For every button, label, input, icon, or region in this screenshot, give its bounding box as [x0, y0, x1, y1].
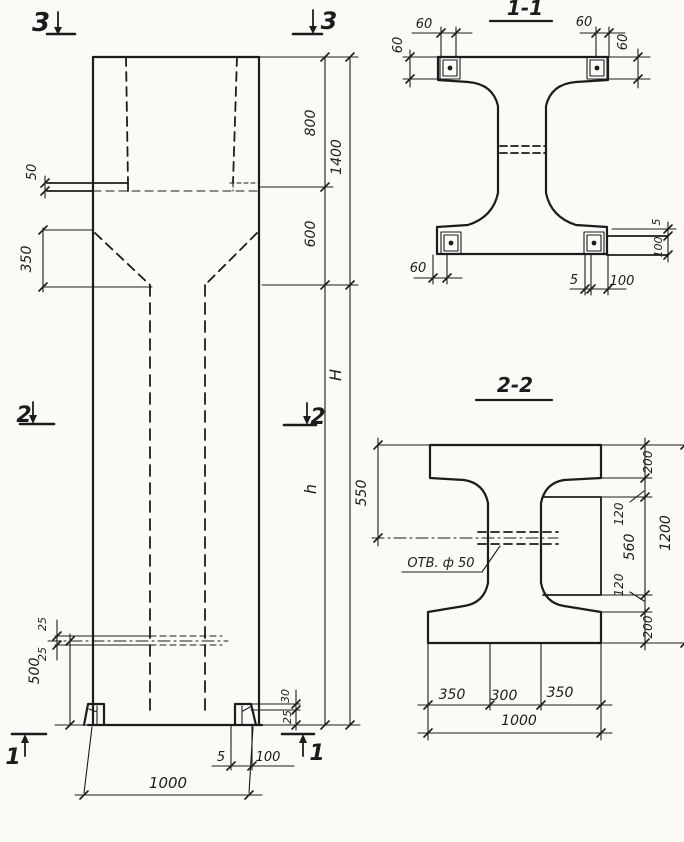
- s11-dim-100-bottom-right: 100: [610, 274, 635, 289]
- s22-dim-120-top: 120: [612, 502, 626, 525]
- dim-height-h: h: [301, 484, 320, 494]
- s22-dimension-ticks: [374, 441, 684, 737]
- section-mark-1-right: 1: [309, 741, 324, 766]
- section-mark-1-left: 1: [5, 745, 20, 770]
- dim-taper-350: 350: [19, 246, 35, 273]
- s22-dim-560: 560: [622, 534, 638, 561]
- s22-i-section-outline: [428, 445, 601, 643]
- s11-dim-5-right-strip: 5: [650, 219, 663, 226]
- dim-foot-30: 30: [279, 689, 292, 703]
- s22-dim-200-top: 200: [641, 450, 655, 473]
- hidden-web-lines: [150, 285, 205, 712]
- dim-base-100: 100: [256, 750, 281, 765]
- section-1-1-title: 1-1: [507, 0, 543, 20]
- column-outline: [88, 57, 262, 725]
- s22-dim-1000: 1000: [501, 713, 537, 729]
- s11-dim-60-top-right: 60: [576, 15, 593, 30]
- drawing-sheet: 332211503508001400600Hh25255003025510010…: [0, 0, 684, 842]
- dim-base-500: 500: [27, 658, 43, 685]
- s22-dim-200-bottom: 200: [641, 615, 655, 638]
- side-ledge: [47, 183, 128, 191]
- section-mark-2-right: 2: [310, 405, 325, 430]
- section-1-1-view: [403, 21, 676, 295]
- s22-dim-120-bottom: 120: [612, 573, 626, 596]
- column-technical-drawing: 332211503508001400600Hh25255003025510010…: [0, 0, 684, 842]
- dim-ledge-50: 50: [25, 164, 40, 181]
- s22-dim-350-right: 350: [547, 685, 574, 701]
- s22-dim-lines: [378, 438, 684, 740]
- s11-dim-60-right: 60: [616, 34, 631, 51]
- s11-dim-100-right-strip: 100: [652, 237, 665, 258]
- s22-dim-1200: 1200: [658, 515, 674, 551]
- hidden-taper-lines: [95, 233, 257, 285]
- right-foot: [235, 704, 256, 725]
- section-2-2-title: 2-2: [497, 373, 533, 397]
- section-mark-arrows: [25, 10, 313, 756]
- dim-top-1400: 1400: [329, 139, 345, 175]
- s11-anchor-dot-br: [592, 241, 597, 246]
- hidden-ledge-marks-right: [230, 183, 259, 191]
- dim-top-800: 800: [303, 110, 319, 137]
- s22-dim-300: 300: [491, 688, 518, 704]
- s22-dim-550: 550: [354, 480, 370, 507]
- s22-dim-350-left: 350: [439, 687, 466, 703]
- section-mark-3-right: 3: [321, 7, 338, 35]
- s11-dim-5-bottom-right: 5: [570, 273, 578, 288]
- hidden-top-socket-lines: [126, 57, 237, 183]
- s11-anchor-dot-tr: [595, 66, 600, 71]
- dim-width-1000: 1000: [149, 774, 187, 792]
- s11-i-section-outline: [437, 57, 608, 254]
- dim-height-H: H: [326, 369, 345, 381]
- dim-base-5: 5: [217, 750, 225, 765]
- s11-anchor-dot-bl: [449, 241, 454, 246]
- section-mark-2-left: 2: [16, 403, 31, 428]
- section-mark-3-left: 3: [32, 8, 50, 38]
- s11-web-break-dashes: [500, 146, 546, 153]
- s11-dim-60-bottom-left: 60: [410, 261, 427, 276]
- dim-top-600: 600: [303, 221, 319, 248]
- right-foot-inner: [242, 706, 250, 725]
- section-mark-bars: [12, 34, 322, 734]
- dim-foot-25: 25: [281, 710, 294, 724]
- dim-hole-25-upper: 25: [36, 617, 49, 631]
- s11-anchor-dot-tl: [448, 66, 453, 71]
- s11-dim-60-left: 60: [391, 37, 406, 54]
- s22-inner-face-lines: [543, 497, 601, 595]
- s22-hole-label: ОТВ. ф 50: [407, 556, 474, 571]
- s11-dim-60-top-left: 60: [416, 17, 433, 32]
